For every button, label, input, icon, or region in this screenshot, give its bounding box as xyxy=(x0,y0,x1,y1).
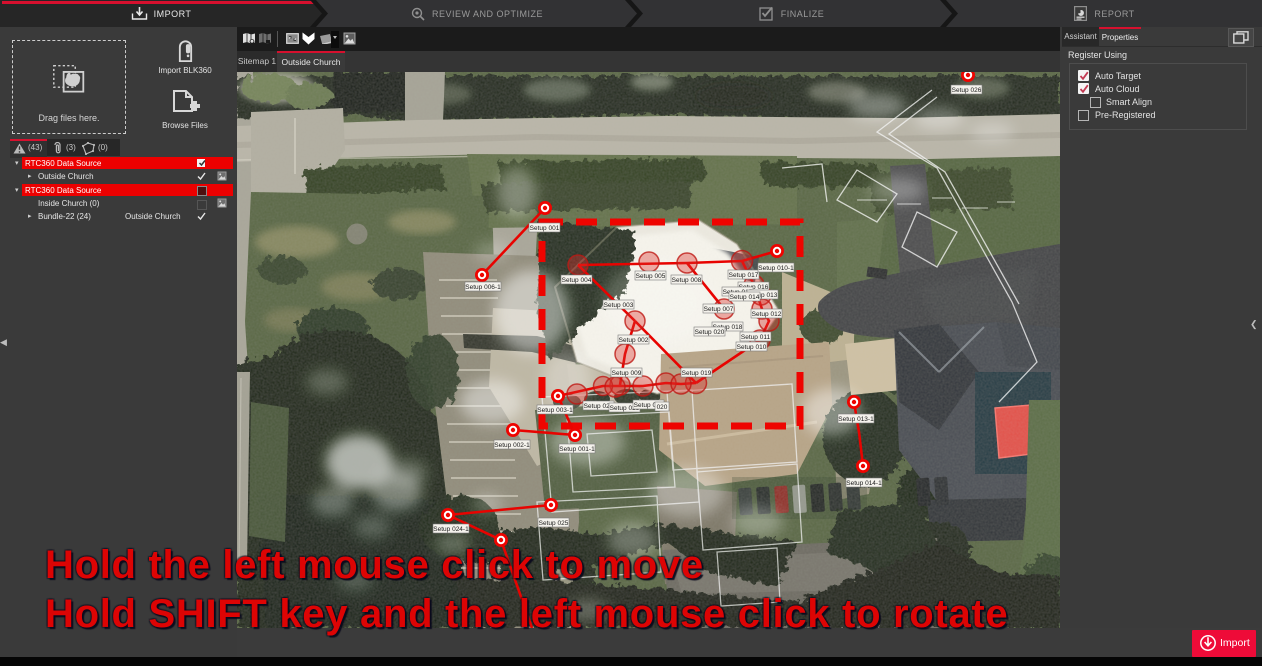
svg-text:Setup 014-1: Setup 014-1 xyxy=(846,480,882,487)
svg-text:Setup 009: Setup 009 xyxy=(612,370,642,377)
svg-text:Setup 003-1: Setup 003-1 xyxy=(537,407,573,414)
svg-text:Setup 001: Setup 001 xyxy=(530,225,560,232)
svg-text:Setup 010: Setup 010 xyxy=(737,344,767,351)
svg-text:Setup 008: Setup 008 xyxy=(672,277,702,284)
svg-text:Setup 025: Setup 025 xyxy=(539,520,569,527)
svg-text:Setup 006-1: Setup 006-1 xyxy=(465,284,501,291)
svg-text:Setup 014: Setup 014 xyxy=(730,294,760,301)
svg-text:Setup 001-1: Setup 001-1 xyxy=(559,446,595,453)
svg-text:Setup 020: Setup 020 xyxy=(695,329,725,336)
svg-text:Setup 002-1: Setup 002-1 xyxy=(494,442,530,449)
svg-text:Setup 010-1: Setup 010-1 xyxy=(758,265,794,272)
svg-text:Setup 017: Setup 017 xyxy=(729,272,759,279)
svg-text:Setup 003: Setup 003 xyxy=(604,302,634,309)
svg-text:Setup 004: Setup 004 xyxy=(562,277,592,284)
svg-text:Setup 002: Setup 002 xyxy=(619,337,649,344)
svg-text:Setup 007: Setup 007 xyxy=(704,306,734,313)
svg-text:Setup 012: Setup 012 xyxy=(752,311,782,318)
svg-text:Setup 005: Setup 005 xyxy=(636,273,666,280)
svg-text:Setup 026: Setup 026 xyxy=(952,87,982,94)
svg-text:Setup 019: Setup 019 xyxy=(682,370,712,377)
svg-text:Setup 013-1: Setup 013-1 xyxy=(838,416,874,423)
svg-text:020: 020 xyxy=(657,404,668,411)
svg-text:Setup 011: Setup 011 xyxy=(741,334,771,341)
svg-text:Setup 024-1: Setup 024-1 xyxy=(433,526,469,533)
